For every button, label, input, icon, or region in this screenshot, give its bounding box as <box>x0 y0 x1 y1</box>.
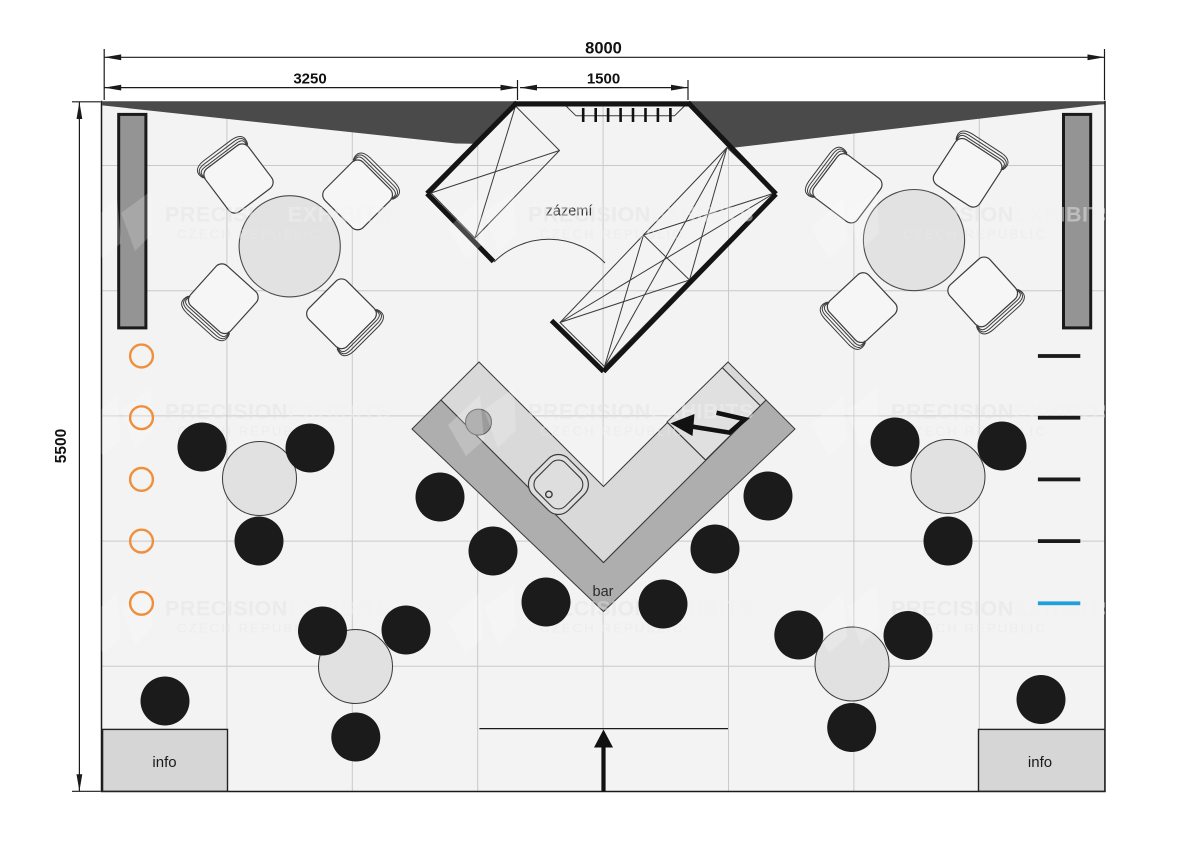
svg-text:PRECISIONEXHIBITS: PRECISIONEXHIBITS <box>891 400 1117 424</box>
svg-text:CZECH REPUBLIC: CZECH REPUBLIC <box>540 227 684 242</box>
svg-text:CZECH REPUBLIC: CZECH REPUBLIC <box>540 424 684 439</box>
svg-text:3250: 3250 <box>293 71 326 88</box>
svg-text:info: info <box>152 754 176 771</box>
svg-text:info: info <box>1028 754 1052 771</box>
svg-text:PRECISIONEXHIBITS: PRECISIONEXHIBITS <box>891 597 1117 621</box>
svg-text:CZECH REPUBLIC: CZECH REPUBLIC <box>903 227 1047 242</box>
svg-text:CZECH REPUBLIC: CZECH REPUBLIC <box>177 227 321 242</box>
svg-text:PRECISIONEXHIBITS: PRECISIONEXHIBITS <box>165 203 391 227</box>
svg-text:PRECISIONEXHIBITS: PRECISIONEXHIBITS <box>891 203 1117 227</box>
svg-text:1500: 1500 <box>587 71 620 88</box>
svg-text:PRECISIONEXHIBITS: PRECISIONEXHIBITS <box>165 400 391 424</box>
svg-text:PRECISIONEXHIBITS: PRECISIONEXHIBITS <box>165 597 391 621</box>
svg-text:8000: 8000 <box>585 40 622 58</box>
svg-text:5500: 5500 <box>53 429 70 463</box>
svg-text:bar: bar <box>593 584 614 600</box>
svg-text:CZECH REPUBLIC: CZECH REPUBLIC <box>903 424 1047 439</box>
svg-text:PRECISIONEXHIBITS: PRECISIONEXHIBITS <box>528 203 754 227</box>
